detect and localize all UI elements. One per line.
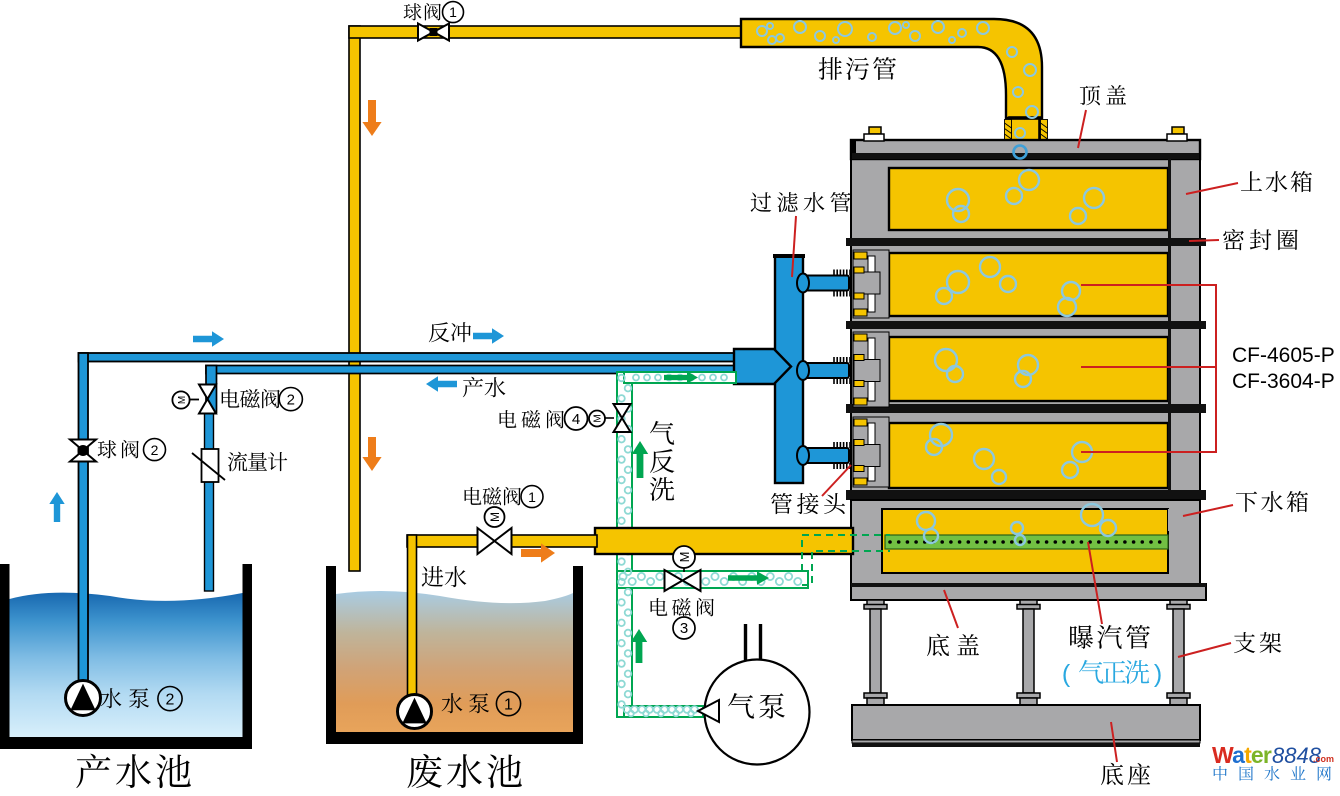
svg-text:(: (	[1062, 660, 1071, 688]
svg-text:Water: Water	[1212, 742, 1272, 768]
svg-text:2: 2	[166, 691, 175, 708]
svg-text:M: M	[593, 414, 604, 422]
svg-text:3: 3	[680, 620, 688, 637]
svg-text:1: 1	[528, 489, 536, 505]
svg-text:CF-4605-P: CF-4605-P	[1232, 344, 1335, 367]
svg-text:2: 2	[287, 392, 295, 409]
svg-text:M: M	[677, 552, 692, 563]
svg-text:.com: .com	[1313, 754, 1334, 764]
svg-text:4: 4	[572, 411, 580, 428]
svg-text:2: 2	[151, 442, 159, 458]
svg-text:1: 1	[504, 696, 513, 713]
svg-text:1: 1	[449, 4, 457, 20]
svg-text:): )	[1154, 660, 1162, 688]
svg-text:M: M	[488, 512, 502, 522]
svg-text:CF-3604-P: CF-3604-P	[1232, 370, 1335, 393]
svg-text:M: M	[177, 396, 188, 404]
